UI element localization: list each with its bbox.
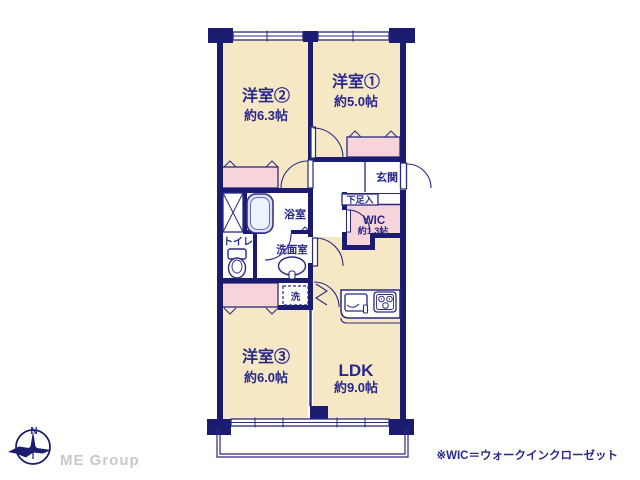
pipe-space-icon bbox=[223, 193, 243, 232]
washroom-label: 洗面室 bbox=[276, 243, 308, 256]
genkan-label: 玄関 bbox=[376, 170, 398, 184]
washroom-door-leaf bbox=[313, 238, 318, 266]
room2-closet bbox=[222, 167, 278, 188]
floor-plan-page: 洋室② 約6.3帖 洋室① 約5.0帖 洋室③ 約6.0帖 LDK 約9.0帖 … bbox=[0, 0, 640, 480]
room3-size-label: 約6.0帖 bbox=[244, 370, 288, 385]
room3-name-label: 洋室③ bbox=[242, 347, 290, 366]
room1-name-label: 洋室① bbox=[332, 72, 380, 91]
wall-bath-washroom-b bbox=[291, 230, 308, 234]
room2-door-leaf bbox=[308, 160, 313, 188]
wic-note: ※WIC＝ウォークインクローゼット bbox=[437, 448, 619, 462]
wall-sanitary-bottom bbox=[217, 278, 313, 283]
balcony bbox=[217, 428, 408, 457]
pillar-bottom-right bbox=[389, 419, 414, 435]
wall-below-room2 bbox=[223, 188, 313, 193]
shoebox-label: 下足入 bbox=[346, 195, 373, 205]
bath-label: 浴室 bbox=[284, 207, 306, 221]
laundry-label: 洗 bbox=[291, 291, 301, 303]
kitchen-sink-icon bbox=[345, 294, 368, 313]
stove-icon bbox=[374, 292, 396, 312]
bird-logo-icon bbox=[8, 444, 51, 458]
wall-laundry-bottom bbox=[278, 305, 313, 310]
pillar-bottom-left bbox=[207, 419, 231, 435]
toilet-label: トイレ bbox=[223, 236, 253, 248]
balcony-outer-line bbox=[217, 428, 408, 457]
brand-label: ME Group bbox=[60, 452, 140, 469]
right-wall-lower bbox=[400, 190, 406, 421]
entrance-door-arc bbox=[407, 164, 431, 188]
ldk-name-label: LDK bbox=[339, 361, 375, 380]
compass: N bbox=[8, 426, 51, 464]
wall-sanitary-right-upper bbox=[308, 188, 313, 237]
bathtub-icon bbox=[247, 194, 273, 233]
toilet-icon bbox=[228, 249, 246, 278]
room2-name-label: 洋室② bbox=[242, 86, 290, 105]
partition-end-block bbox=[310, 406, 328, 420]
room1-door-leaf bbox=[311, 127, 316, 158]
balcony-inner-line bbox=[220, 428, 405, 454]
wall-sanitary-right-lower bbox=[308, 263, 313, 309]
right-wall-upper bbox=[400, 36, 406, 163]
wall-below-room1 bbox=[313, 157, 406, 162]
entrance-door-leaf bbox=[401, 163, 407, 189]
wic-door-leaf bbox=[347, 210, 351, 232]
room1-closet bbox=[347, 137, 400, 157]
kitchen-counter-icon bbox=[341, 290, 400, 323]
ldk-size-label: 約9.0帖 bbox=[334, 380, 378, 395]
wic-size-label: 約1.3帖 bbox=[358, 225, 389, 236]
left-wall bbox=[217, 36, 223, 421]
north-label: N bbox=[30, 426, 37, 437]
wall-toilet-washroom bbox=[253, 234, 257, 278]
floor-plan: 洋室② 約6.3帖 洋室① 約5.0帖 洋室③ 約6.0帖 LDK 約9.0帖 … bbox=[0, 0, 640, 480]
room1-size-label: 約5.0帖 bbox=[334, 94, 378, 109]
corridor-floor bbox=[313, 192, 343, 237]
room3-closet bbox=[222, 283, 278, 307]
room2-size-label: 約6.3帖 bbox=[244, 108, 288, 123]
